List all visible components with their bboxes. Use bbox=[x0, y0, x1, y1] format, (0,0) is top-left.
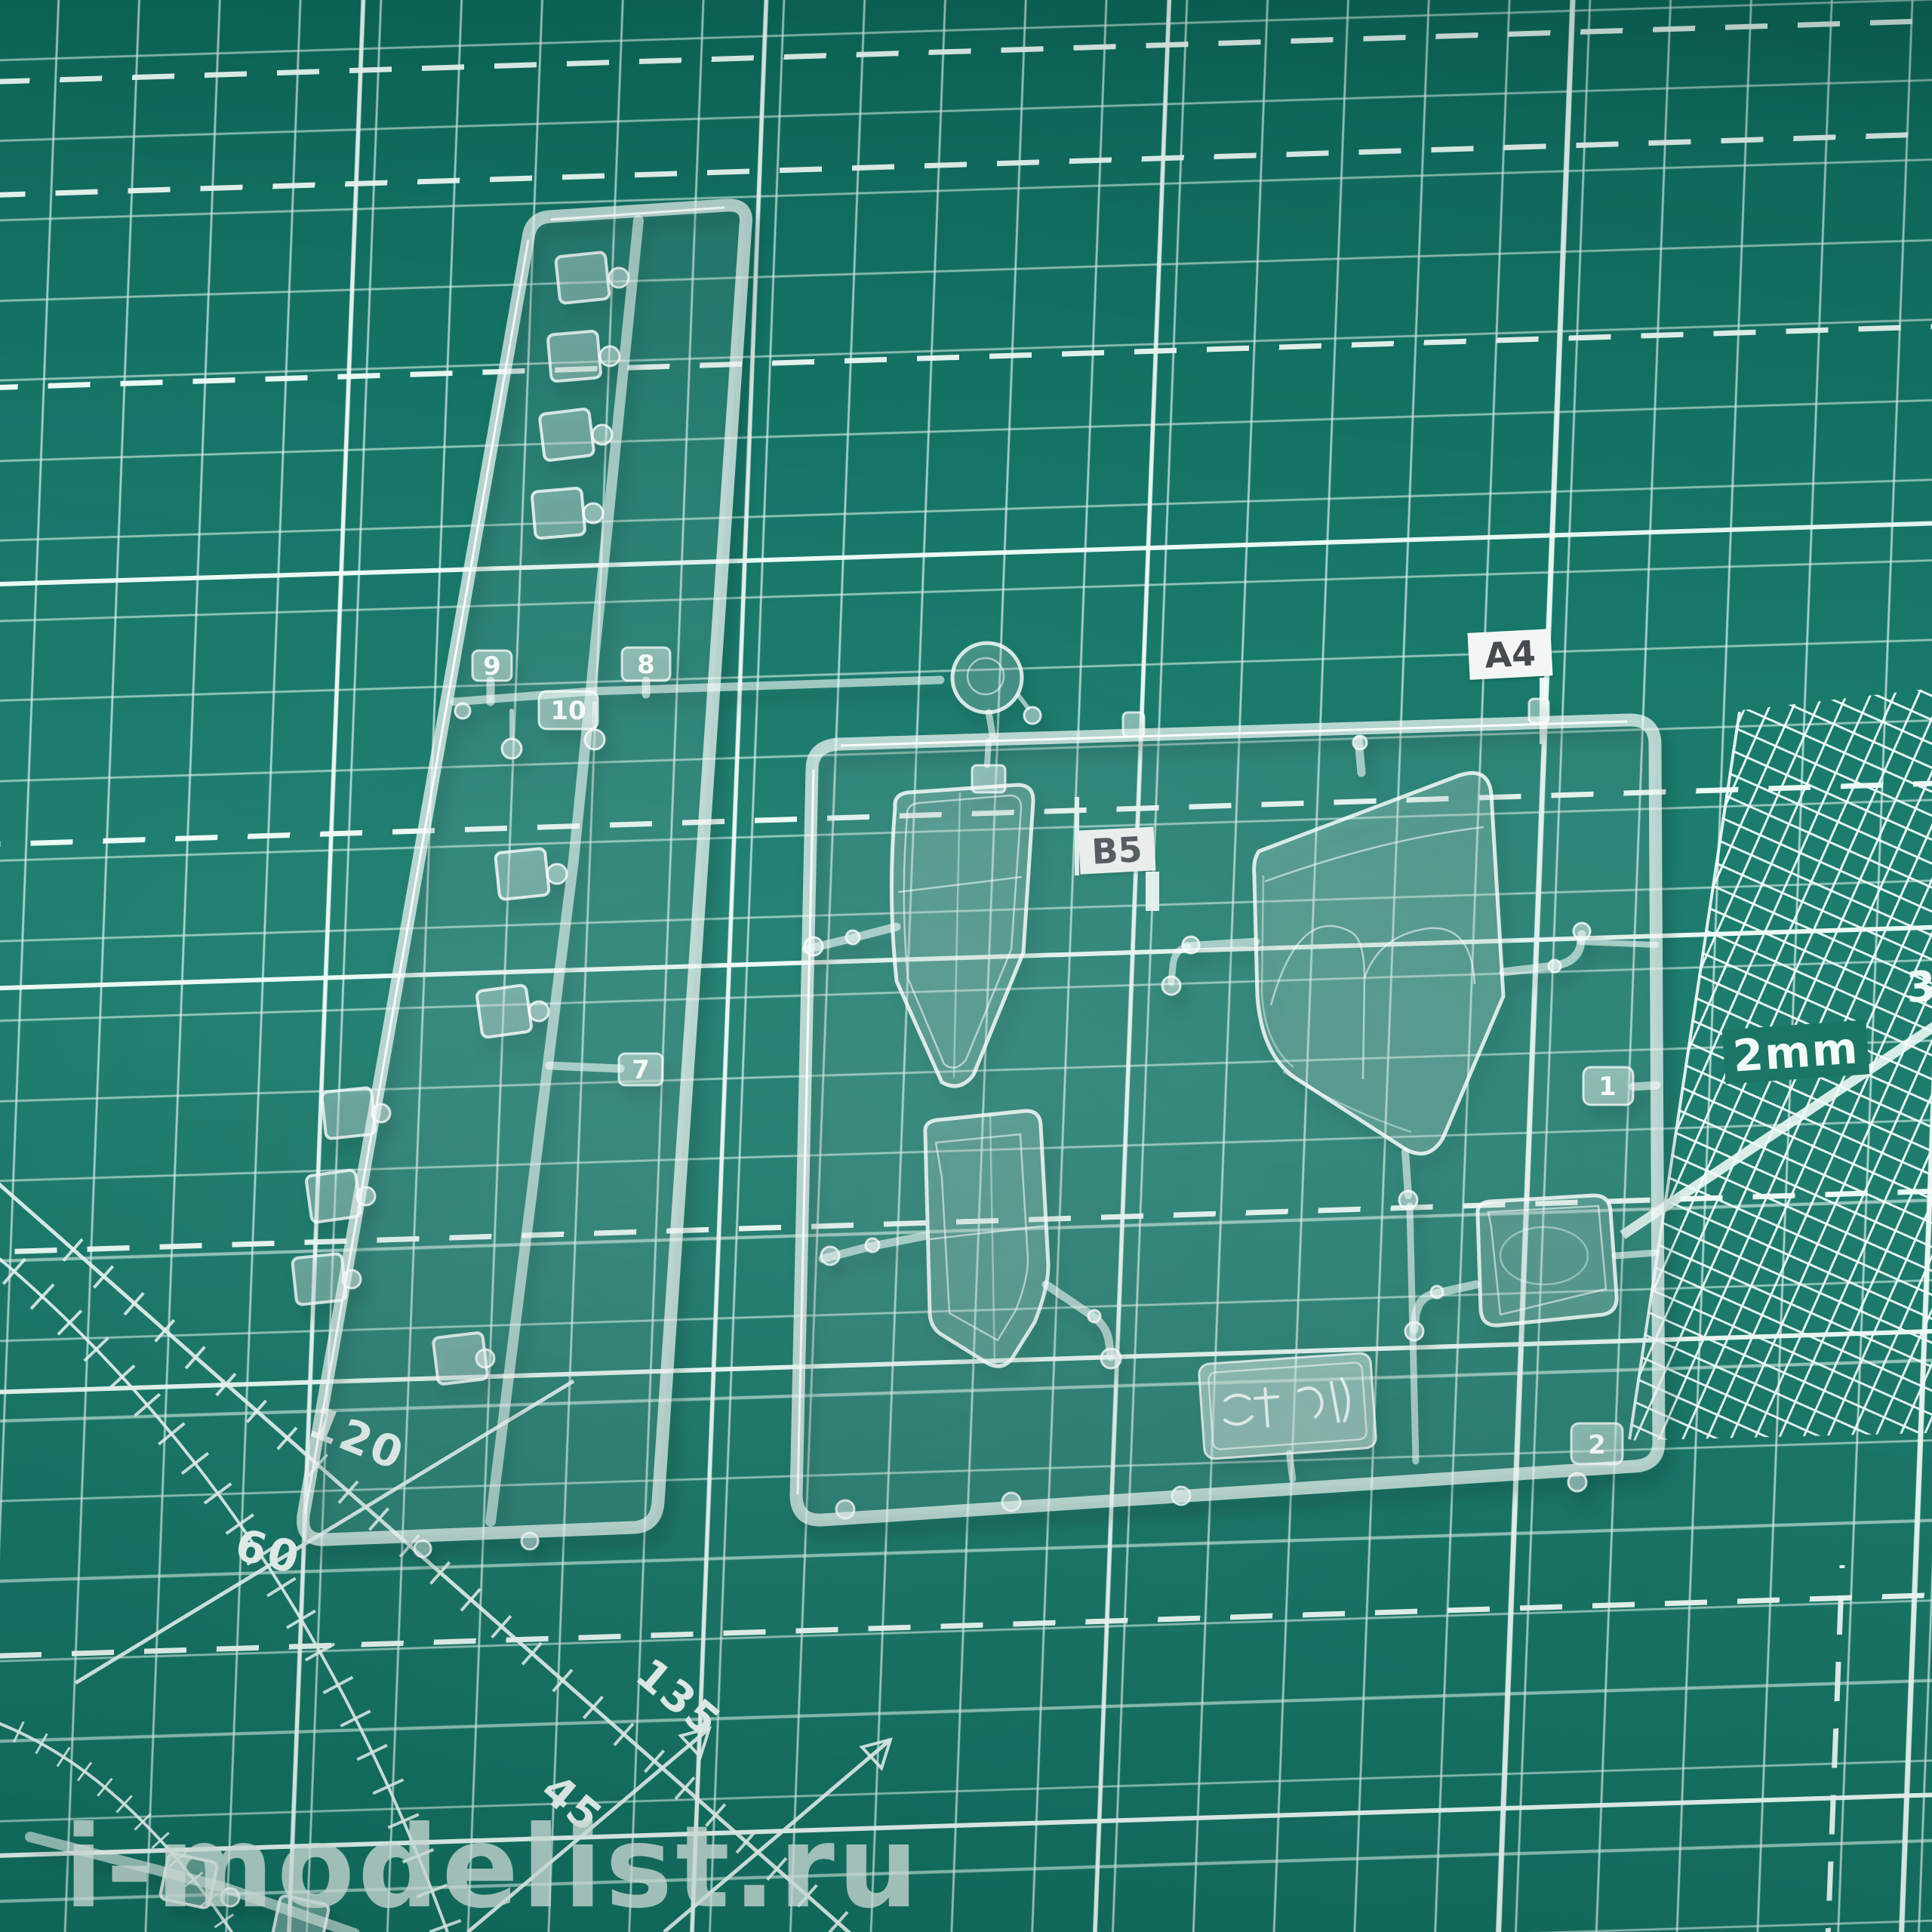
lens-part bbox=[952, 643, 1041, 738]
photo-canvas: 2mm 120 60 135 45 3 A4 B5 bbox=[0, 0, 1932, 1932]
part-tab-8: 8 bbox=[637, 650, 655, 680]
part-tab-2: 2 bbox=[1588, 1430, 1606, 1460]
part-tab-7: 7 bbox=[632, 1055, 650, 1085]
clear-sprue-photo: 9 8 10 7 bbox=[0, 0, 1932, 1932]
part-tab-9: 9 bbox=[483, 651, 501, 681]
site-watermark: i-modelist.ru bbox=[64, 1802, 921, 1932]
part-tab-1: 1 bbox=[1598, 1072, 1617, 1102]
part-tab-10: 10 bbox=[550, 696, 586, 726]
